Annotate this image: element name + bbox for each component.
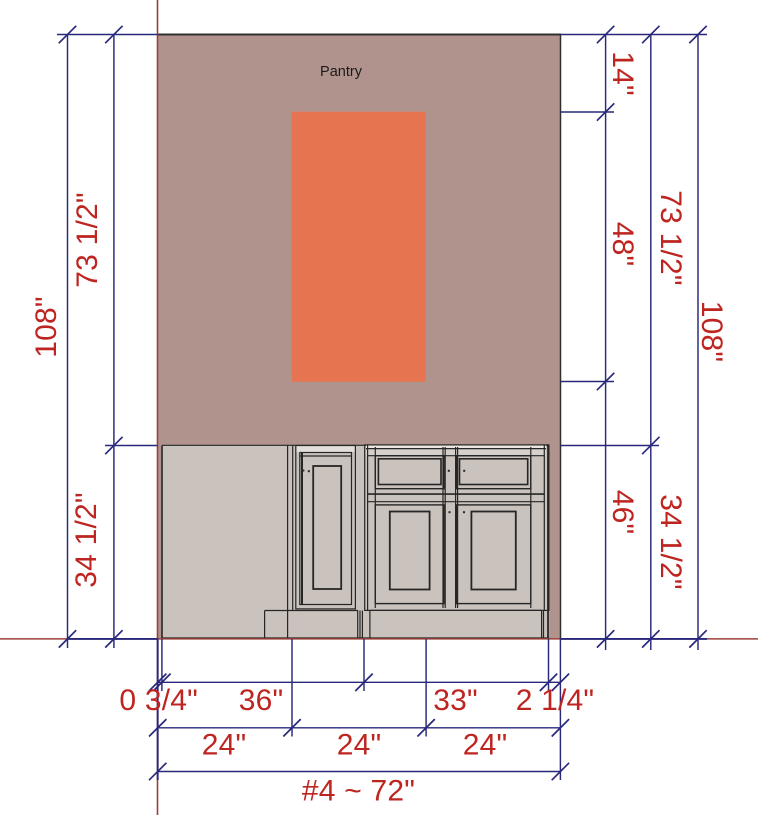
svg-text:14": 14": [606, 51, 639, 96]
svg-text:34 1/2": 34 1/2": [654, 494, 687, 589]
svg-text:24": 24": [463, 729, 508, 762]
svg-text:108": 108": [30, 296, 63, 358]
svg-text:73 1/2": 73 1/2": [71, 192, 104, 287]
svg-text:Pantry: Pantry: [320, 64, 363, 80]
svg-text:33": 33": [433, 684, 478, 717]
svg-text:48": 48": [606, 222, 639, 267]
svg-text:73 1/2": 73 1/2": [654, 190, 687, 285]
svg-text:46": 46": [606, 490, 639, 535]
svg-text:108": 108": [695, 301, 728, 363]
svg-text:2 1/4": 2 1/4": [516, 684, 595, 717]
svg-text:34 1/2": 34 1/2": [70, 492, 103, 587]
svg-text:0 3/4": 0 3/4": [119, 684, 198, 717]
svg-text:#4 ~ 72": #4 ~ 72": [302, 775, 415, 808]
svg-text:24": 24": [337, 729, 382, 762]
svg-text:36": 36": [239, 684, 284, 717]
svg-text:24": 24": [202, 729, 247, 762]
